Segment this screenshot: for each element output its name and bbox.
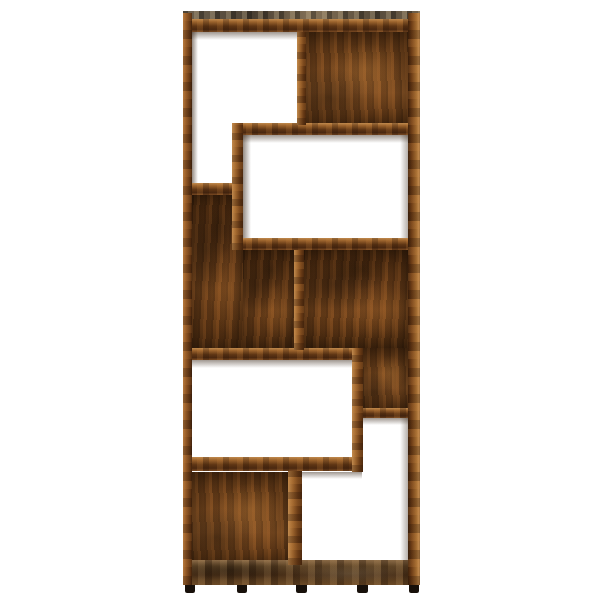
shade-board-b-side xyxy=(243,135,251,238)
foot-4 xyxy=(357,585,368,593)
back-panel-left-middle-lower xyxy=(243,250,294,350)
left-side-frame xyxy=(183,13,192,585)
shelf-c-front xyxy=(232,123,408,135)
shade-under-shelf-j xyxy=(302,472,362,479)
foot-1 xyxy=(185,585,195,593)
board-b-vertical xyxy=(232,123,243,250)
back-panel-right-middle xyxy=(303,250,408,348)
shade-under-shelf-c xyxy=(243,135,408,143)
foot-5 xyxy=(409,585,419,593)
shade-under-shelf-g xyxy=(192,360,352,368)
top-board-front xyxy=(183,19,420,32)
divider-k-bottom xyxy=(288,471,302,565)
shelf-e-front xyxy=(232,238,408,250)
back-panel-right-middle-notch xyxy=(363,348,408,410)
shade-under-top-board xyxy=(192,32,297,40)
right-side-frame xyxy=(408,13,420,585)
shade-left-frame-inner xyxy=(192,32,198,183)
top-board-surface xyxy=(183,11,420,19)
shelf-g-front xyxy=(183,348,363,360)
foot-3 xyxy=(296,585,307,593)
shelf-j-front xyxy=(183,457,362,471)
divider-f-middle xyxy=(294,250,304,350)
divider-a-top xyxy=(297,32,306,125)
shade-right-frame-inner-upper xyxy=(400,135,408,238)
back-panel-top-right xyxy=(303,32,408,125)
product-photo-bookshelf xyxy=(0,0,600,600)
foot-2 xyxy=(237,585,247,593)
shelf-i-front xyxy=(360,408,408,418)
back-panel-bottom-left xyxy=(192,472,288,565)
board-h-vertical xyxy=(352,348,363,472)
shade-right-frame-inner-lower xyxy=(400,418,408,562)
